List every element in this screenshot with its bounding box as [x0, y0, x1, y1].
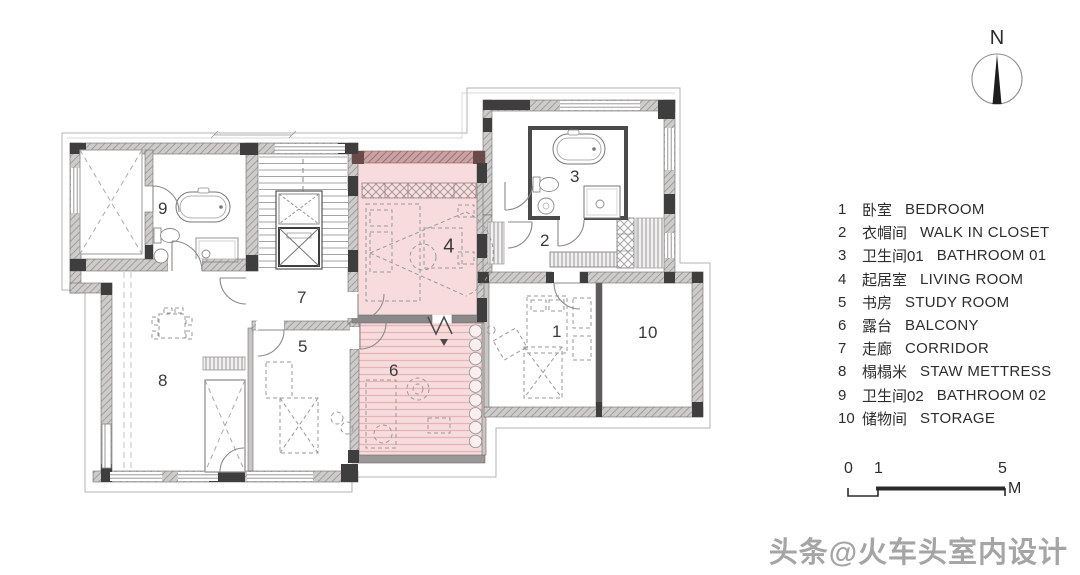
legend-en: LIVING ROOM: [920, 271, 1023, 288]
room-number-4: 4: [443, 236, 455, 259]
legend-zh: 书房: [862, 292, 892, 313]
north-label: N: [965, 28, 1029, 48]
legend-num: 5: [838, 294, 862, 311]
legend-item-4: 4起居室LIVING ROOM: [838, 268, 1051, 291]
legend-num: 10: [838, 410, 862, 427]
legend-num: 3: [838, 247, 862, 264]
north-arrow: N: [965, 28, 1029, 118]
legend-zh: 卫生间02: [862, 385, 924, 406]
legend-en: STAW METTRESS: [920, 363, 1051, 380]
legend-item-10: 10储物间STORAGE: [838, 407, 1051, 430]
legend-en: BEDROOM: [905, 201, 985, 218]
legend-num: 2: [838, 224, 862, 241]
legend-item-6: 6露台BALCONY: [838, 314, 1051, 337]
scale-tick-5: 5: [998, 460, 1007, 478]
watermark: 头条@火车头室内设计: [769, 529, 1068, 571]
room-number-1: 1: [552, 322, 562, 342]
legend-num: 8: [838, 363, 862, 380]
legend-item-3: 3卫生间01BATHROOM 01: [838, 244, 1051, 267]
legend-zh: 卧室: [862, 199, 892, 220]
legend-item-5: 5书房STUDY ROOM: [838, 291, 1051, 314]
legend-item-8: 8榻榻米STAW METTRESS: [838, 360, 1051, 383]
compass-icon: [965, 49, 1029, 113]
scale-bar: 0 1 5 M: [840, 460, 1040, 508]
legend-num: 7: [838, 340, 862, 357]
room-number-5: 5: [298, 337, 308, 357]
legend-en: BATHROOM 01: [937, 247, 1047, 264]
room-number-2: 2: [540, 231, 550, 251]
legend-zh: 走廊: [862, 338, 892, 359]
elevator: [276, 191, 322, 269]
legend-en: WALK IN CLOSET: [920, 224, 1050, 241]
legend-zh: 衣帽间: [862, 222, 907, 243]
living-room-top-wall: [352, 151, 485, 164]
legend-zh: 起居室: [862, 269, 907, 290]
legend-en: BATHROOM 02: [937, 387, 1047, 404]
scale-bar-graphic: [840, 484, 1020, 502]
floor-plan-page: 1 2 3 4 5 6 7 8 9 10 1卧室BEDROOM 2衣帽间WALK…: [0, 0, 1080, 575]
legend-en: BALCONY: [905, 317, 979, 334]
legend-zh: 露台: [862, 315, 892, 336]
legend-en: STUDY ROOM: [905, 294, 1009, 311]
legend-en: CORRIDOR: [905, 340, 989, 357]
legend-zh: 卫生间01: [862, 245, 924, 266]
legend-zh: 榻榻米: [862, 361, 907, 382]
room-number-3: 3: [570, 167, 580, 187]
balcony-planters: [469, 325, 481, 448]
legend-item-1: 1卧室BEDROOM: [838, 198, 1051, 221]
legend: 1卧室BEDROOM 2衣帽间WALK IN CLOSET 3卫生间01BATH…: [838, 198, 1051, 430]
legend-item-9: 9卫生间02BATHROOM 02: [838, 384, 1051, 407]
legend-item-2: 2衣帽间WALK IN CLOSET: [838, 221, 1051, 244]
room-number-10: 10: [638, 323, 658, 343]
legend-zh: 储物间: [862, 408, 907, 429]
legend-en: STORAGE: [920, 410, 995, 427]
scale-tick-0: 0: [844, 460, 853, 478]
legend-num: 6: [838, 317, 862, 334]
legend-num: 1: [838, 201, 862, 218]
room-number-8: 8: [158, 371, 168, 391]
legend-num: 4: [838, 271, 862, 288]
legend-item-7: 7走廊CORRIDOR: [838, 337, 1051, 360]
legend-num: 9: [838, 387, 862, 404]
scale-tick-1: 1: [874, 460, 883, 478]
room-number-9: 9: [158, 199, 168, 219]
room-number-7: 7: [297, 288, 307, 308]
room-number-6: 6: [389, 361, 399, 381]
